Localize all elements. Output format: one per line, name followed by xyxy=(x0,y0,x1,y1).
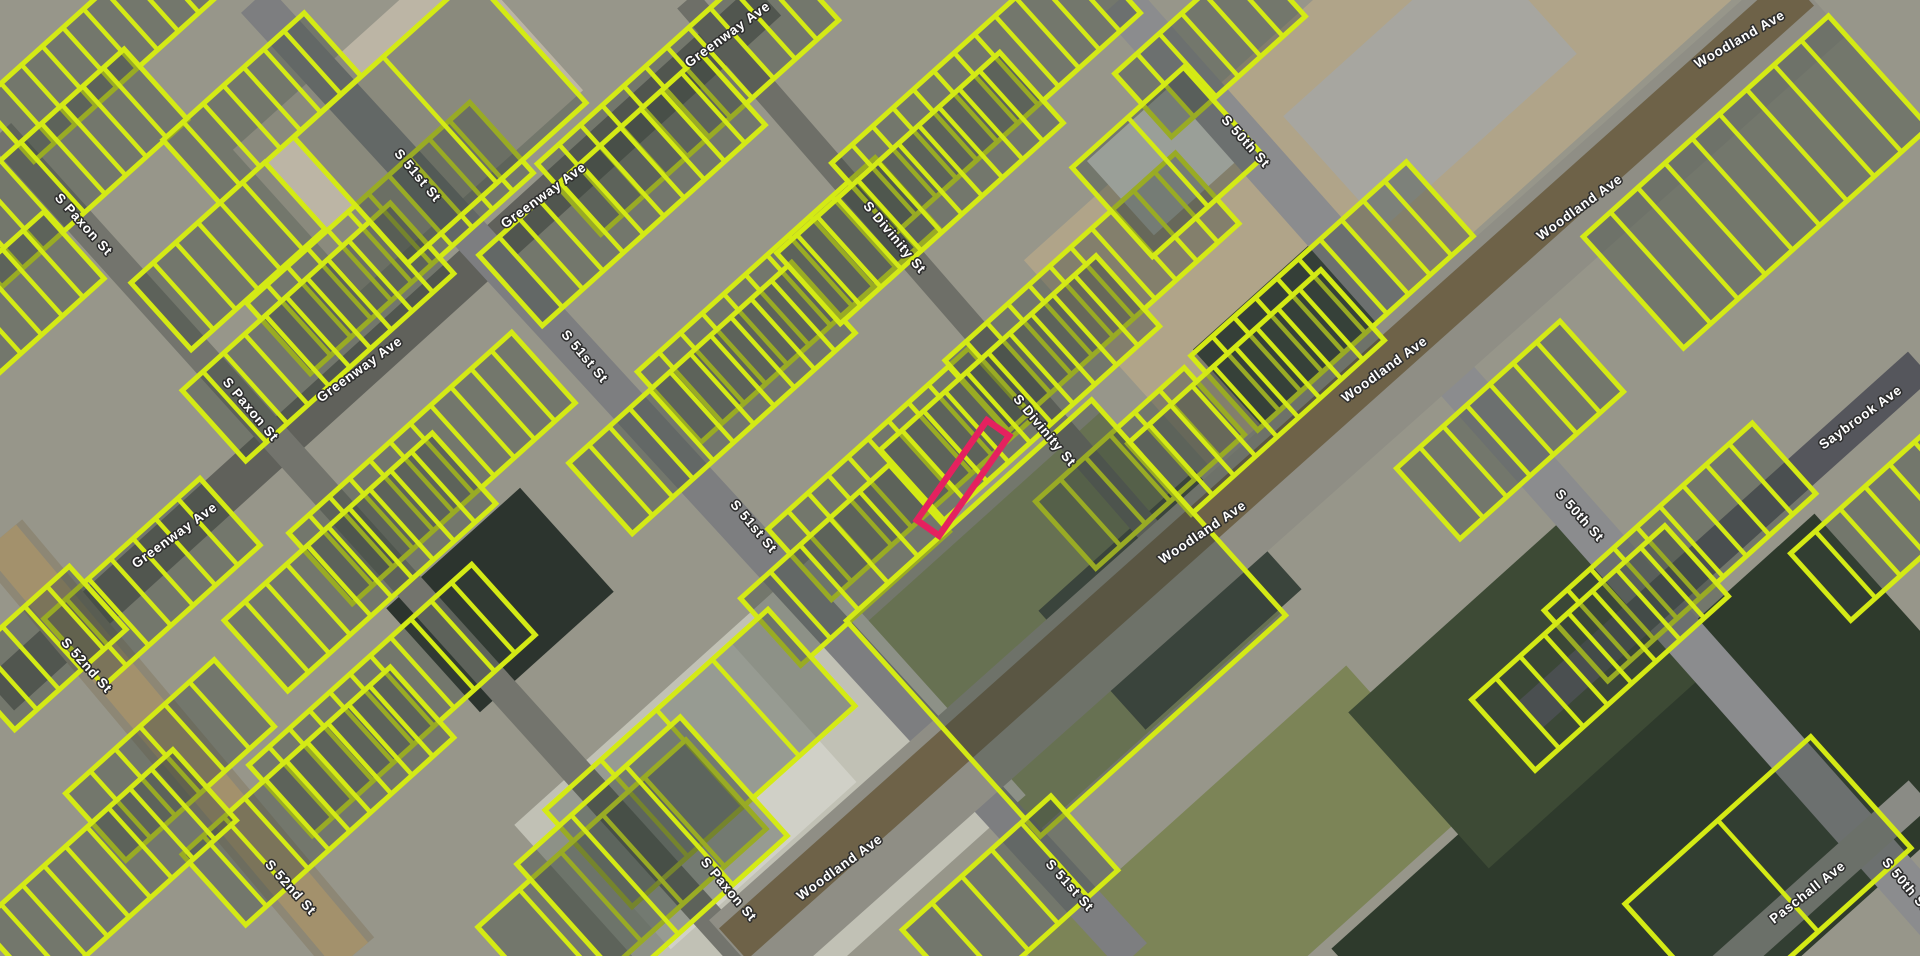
map-viewport[interactable]: Greenway AveGreenway AveGreenway AveGree… xyxy=(0,0,1920,956)
parcel-map-svg: Greenway AveGreenway AveGreenway AveGree… xyxy=(0,0,1920,956)
